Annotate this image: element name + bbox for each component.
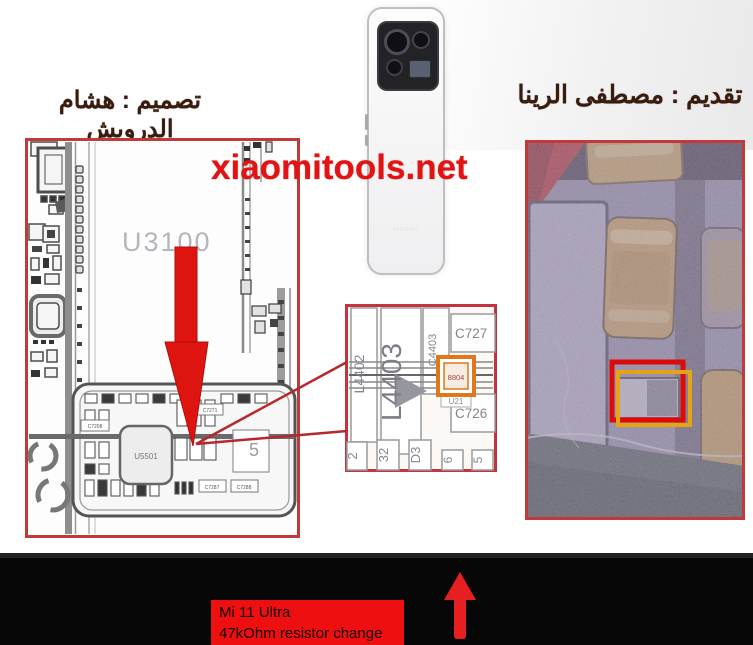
highlighted-resistor: 8804 <box>438 357 474 395</box>
l4403-label: L4403 <box>376 343 407 421</box>
mi11-ultra-phone-image: xiaomi <box>367 7 445 275</box>
c727-label: C727 <box>455 326 487 341</box>
footer-bar: Mi 11 Ultra 47kOhm resistor change <box>0 553 753 645</box>
microscope-photo-panel <box>525 140 745 520</box>
volume-button <box>365 114 368 130</box>
camera-lens-icon <box>386 59 403 76</box>
u3100-label: U3100 <box>122 227 212 257</box>
camera-lens-icon <box>384 29 410 55</box>
l4402-label: L4402 <box>351 354 367 393</box>
camera-lens-icon <box>412 31 430 49</box>
designer-credit-text: تصميم : هشام الدرويش <box>24 86 236 144</box>
background-shade <box>410 0 753 150</box>
footer-caption-label: Mi 11 Ultra 47kOhm resistor change <box>211 600 404 645</box>
watermark-text: xiaomitools.net <box>211 148 468 188</box>
power-button <box>365 135 368 146</box>
c7271-label: C7271 <box>203 408 218 414</box>
presenter-credit-text: تقديم : مصطفى الرينا <box>510 80 750 110</box>
bottom-label: 32 <box>376 448 391 462</box>
footer-caption-line2: 47kOhm resistor change <box>219 623 404 644</box>
phone-brand-mark: xiaomi <box>369 226 443 233</box>
resistor-value-label: 8804 <box>448 373 465 382</box>
up-arrow-shaft <box>454 599 466 639</box>
c7208-label: C7208 <box>88 424 103 430</box>
bottom-label: D3 <box>408 447 423 464</box>
c7288-label: C7288 <box>237 485 252 491</box>
photo-grain-light <box>525 140 745 520</box>
footer-caption-line1: Mi 11 Ultra <box>219 602 404 623</box>
pcb-schematic-panel: U3100 <box>25 138 300 538</box>
c7287-label: C7287 <box>205 485 220 491</box>
u5501-label: U5501 <box>134 452 158 461</box>
pad-5-label: 5 <box>249 440 259 460</box>
zoom-detail-box: L4402 L4403 C4403 C727 C726 2 32 D3 6 5 … <box>345 304 497 472</box>
camera-rear-display <box>409 60 431 78</box>
bottom-label: 5 <box>471 456 485 463</box>
bottom-label: 6 <box>441 456 455 463</box>
up-arrow-icon <box>444 572 476 600</box>
repair-guide-image: تصميم : هشام الدرويش تقديم : مصطفى الرين… <box>0 0 753 645</box>
c726-label: C726 <box>455 406 487 421</box>
bottom-label: 2 <box>345 452 360 459</box>
camera-module <box>377 21 439 91</box>
u21-label: U21 <box>449 397 464 406</box>
